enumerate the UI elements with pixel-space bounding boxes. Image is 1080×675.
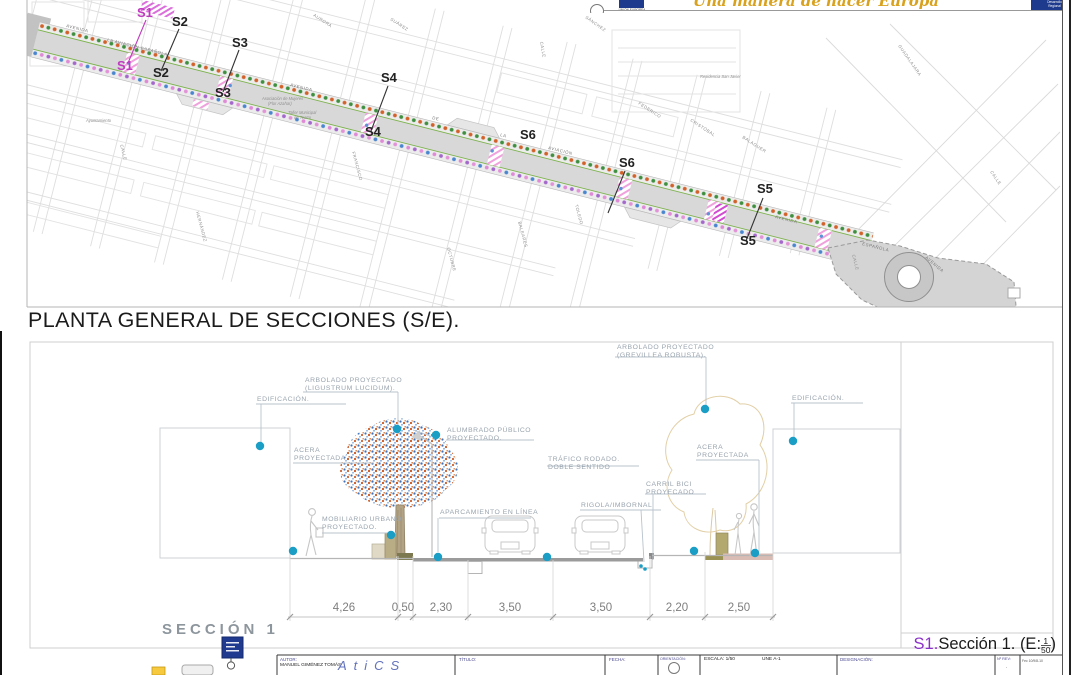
landmark-label: de Teatro xyxy=(294,115,312,120)
sheet-edge-left xyxy=(0,331,2,675)
eu-slogan: Una manera de hacer Europa xyxy=(646,0,986,10)
drawing-sheet: S1S2S3S1S2S3S4S4S6S6S5S5AVENIDALA AVIACI… xyxy=(0,0,1080,675)
titulo-label: TÍTULO: xyxy=(459,657,476,662)
section-caption: S1.Sección 1. (E:150) xyxy=(880,635,1056,655)
plan-section-marker: S2 xyxy=(172,14,188,29)
plan-section-marker: S3 xyxy=(232,35,248,50)
cross-street-label: FEDERICO xyxy=(637,101,662,120)
plan-section-marker: S4 xyxy=(365,124,382,139)
avenue-street-label: LA xyxy=(500,132,507,138)
caption-text: Sección 1. (E: xyxy=(938,635,1041,653)
survey-circle-icon xyxy=(590,4,604,13)
section-annotation: EDIFICACIÓN. xyxy=(257,394,309,403)
autor-value: MANUEL GIMÉNEZ TOMÁS xyxy=(280,663,341,668)
misc-icons xyxy=(152,665,213,675)
section-annotation: CARRIL BICIPROYECADO xyxy=(646,481,694,496)
dimension-value: 0,50 xyxy=(392,602,414,614)
section-annotation: RIGOLA/IMBORNAL xyxy=(581,502,652,509)
plan-map: S1S2S3S1S2S3S4S4S6S6S5S5AVENIDALA AVIACI… xyxy=(0,0,1060,312)
fecha-label: FECHA: xyxy=(609,657,626,662)
plan-view: S1S2S3S1S2S3S4S4S6S6S5S5AVENIDALA AVIACI… xyxy=(0,0,1080,312)
caption-prefix: S1. xyxy=(914,635,939,653)
car-outline xyxy=(482,516,538,554)
legend-pin xyxy=(222,637,243,669)
orientation-icon xyxy=(668,662,680,674)
section-annotation: EDIFICACIÓN. xyxy=(792,393,844,402)
plan-section-marker: S1 xyxy=(137,5,153,20)
designacion-label: DESIGNACIÓN: xyxy=(840,657,873,662)
eu-flag-icon xyxy=(619,0,644,8)
plan-section-marker: S3 xyxy=(215,85,231,100)
escala-value: ESCALA: 1/50 xyxy=(704,657,735,662)
cross-street-label: SÁNCHEZ xyxy=(584,15,607,33)
plan-section-marker: S5 xyxy=(740,233,756,248)
section-name-label: SECCIÓN 1 xyxy=(162,621,279,638)
section-annotation: ARBOLADO PROYECTADO(LIGUSTRUM LUCIDUM). xyxy=(305,377,402,392)
plan-section-marker: S4 xyxy=(381,70,398,85)
cross-street-label: SUÁREZ xyxy=(389,17,409,32)
nrev-value: . xyxy=(1006,665,1007,670)
cross-street-label: HERNÁNDEZ xyxy=(195,211,208,242)
cross-street-label: CALLE xyxy=(989,170,1002,186)
cross-street-label: TOLEDO xyxy=(574,204,584,225)
ref-value: Fec 10/9/8-10 xyxy=(1022,659,1043,663)
plan-section-marker: S6 xyxy=(619,155,635,170)
dimension-value: 4,26 xyxy=(333,602,355,614)
sheet-header: Una manera de hacer Europa UNIÓN EUROPEA… xyxy=(556,0,1063,13)
feder-logo: Desarrollo Regional xyxy=(1031,0,1063,10)
orientacion-label: ORIENTACIÓN: xyxy=(660,657,686,661)
dimension-value: 2,30 xyxy=(430,602,452,614)
roundabout xyxy=(828,240,1020,312)
nrev-label: Nº REV: xyxy=(997,657,1011,661)
sheet-edge-right-inner xyxy=(1062,0,1063,675)
section-annotation: ARBOLADO PROYECTADO(GREVILLEA ROBUSTA). xyxy=(617,344,714,359)
cross-street-label: CALLE xyxy=(539,41,547,58)
dimension-value: 2,50 xyxy=(728,602,750,614)
header-rule xyxy=(604,10,1063,11)
studio-logo: AtiCS xyxy=(338,658,406,673)
dimension-value: 3,50 xyxy=(590,602,612,614)
cross-street-label: GUADALAJARA xyxy=(897,44,922,77)
landmark-label: (Flor Azahar) xyxy=(268,101,292,106)
section-annotation: APARCAMIENTO EN LÍNEA xyxy=(440,507,538,516)
plan-section-marker: S6 xyxy=(520,127,536,142)
section-annotation: TRÁFICO RODADO.DOBLE SENTIDO xyxy=(548,454,620,471)
landmark-label: Residencia San Javier xyxy=(700,74,741,79)
landmark-label: Ayuntamiento xyxy=(85,118,112,123)
plan-section-marker: S5 xyxy=(757,181,773,196)
dimension-value: 3,50 xyxy=(499,602,521,614)
plan-section-marker: S1 xyxy=(117,58,133,73)
caption-scale-fraction: 150 xyxy=(1041,637,1050,655)
formato-value: UNE A-1 xyxy=(762,657,781,662)
avenue-street-label: DE xyxy=(432,115,440,122)
cross-street-label: BALAGUER xyxy=(741,135,767,154)
cross-street-label: CRISTÓBAL xyxy=(689,118,716,138)
sheet-edge-right-outer xyxy=(1069,0,1071,675)
autor-label: AUTOR: xyxy=(280,657,297,662)
dimension-value: 2,20 xyxy=(666,602,688,614)
plan-section-marker: S2 xyxy=(153,65,169,80)
car-outline xyxy=(572,516,628,554)
